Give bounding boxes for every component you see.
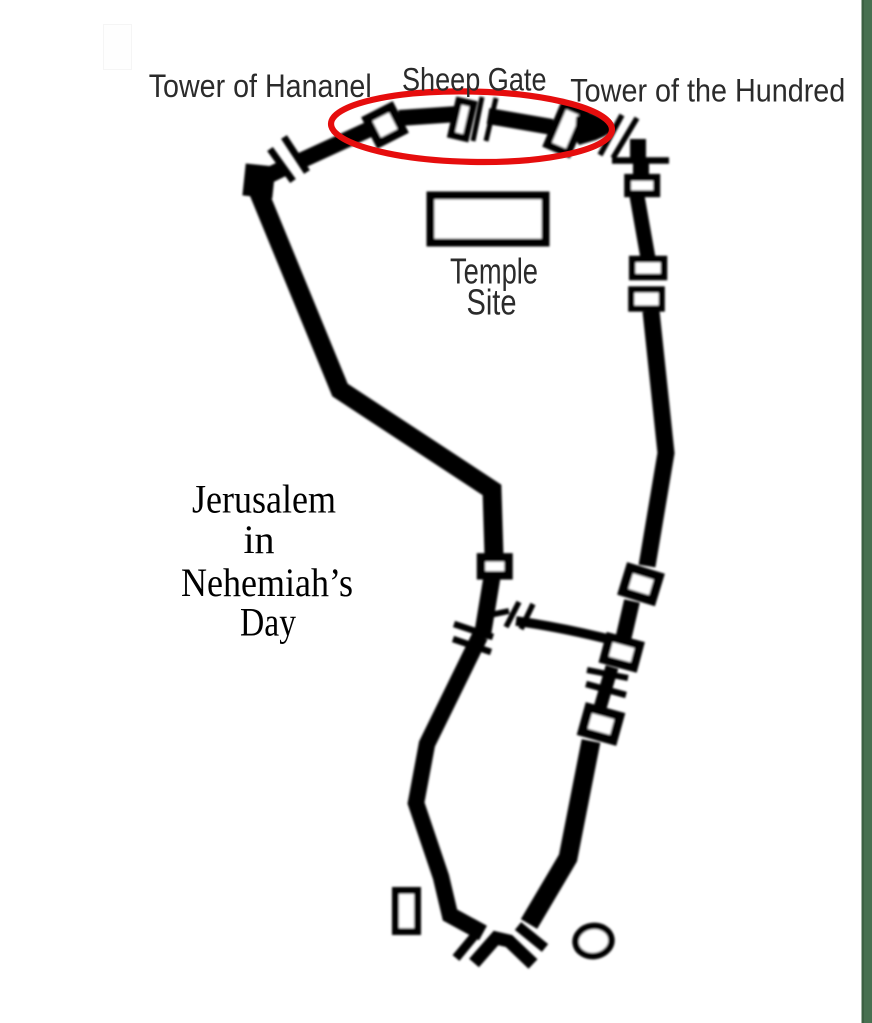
svg-text:Day: Day (240, 600, 296, 645)
svg-text:Nehemiah’s: Nehemiah’s (181, 560, 353, 605)
svg-text:Site: Site (467, 282, 517, 323)
svg-text:Sheep Gate: Sheep Gate (402, 61, 547, 97)
svg-text:in: in (243, 517, 274, 562)
svg-text:Tower of the Hundred: Tower of the Hundred (570, 71, 845, 108)
svg-text:Tower of Hananel: Tower of Hananel (149, 68, 372, 104)
svg-text:Jerusalem: Jerusalem (192, 476, 336, 521)
